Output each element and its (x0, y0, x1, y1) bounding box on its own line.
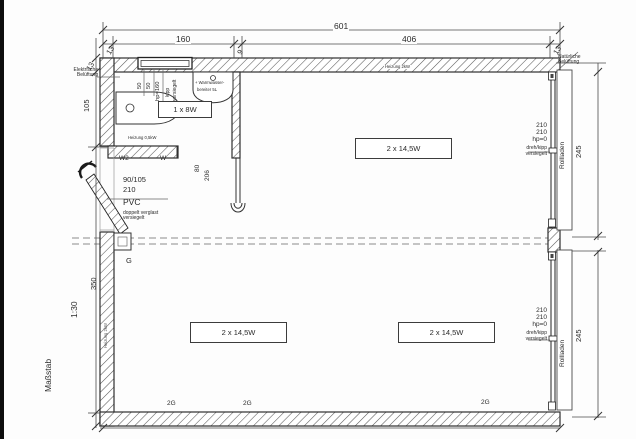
electric-vent-line2: Belüftung (58, 73, 98, 78)
section-dashed-lines (72, 238, 548, 244)
lower-window-labels: 210 210 hp=0 dreh/kipp versiegelt (504, 308, 547, 342)
dim-total-width: 601 (333, 22, 349, 31)
dim-bath-height: 105 (83, 99, 91, 112)
main-light-label: 2 x 14,5W (387, 144, 421, 153)
upper-window-sealed: versiegelt (504, 152, 547, 157)
scale-word: Maßstab (44, 359, 53, 392)
natural-vent-line2: Belüftung (558, 60, 581, 65)
scan-edge (0, 0, 4, 439)
electric-vent-label: Elektrische Belüftung (58, 68, 98, 79)
heater-text-1: + Warmwasser- (195, 81, 224, 85)
door-sealed: versiegelt (123, 216, 158, 221)
circuit-tag-1: 2G (167, 401, 176, 408)
upper-window-hp: hp=0 (504, 137, 547, 144)
floor-plan-page: 601 160 406 13 9 13 13 105 350 Maßstab 1… (0, 0, 636, 439)
lower-window-hp: hp=0 (504, 322, 547, 329)
circuit-tag-2: 2G (243, 401, 252, 408)
circuit-tag-3: 2G (481, 400, 490, 407)
gas-meter-box (114, 233, 131, 250)
door-handle-icon (231, 203, 245, 212)
main-light-fixture-right: 2 x 14,5W (398, 322, 495, 343)
bath-window-seg2: 50 (146, 83, 152, 89)
bath-window-hp: hp=160 (155, 81, 161, 101)
right-window-lower (549, 252, 558, 410)
bath-window-type: kipp (166, 88, 171, 97)
exterior-door-labels: 90/105 210 PVC doppelt verglast versiege… (123, 176, 158, 221)
gas-tag: G (126, 257, 132, 265)
dim-main-width: 406 (401, 35, 417, 44)
bath-door-height: 206 (205, 170, 212, 181)
scale-value: 1:30 (70, 301, 79, 318)
main-light-label: 2 x 14,5W (430, 328, 464, 337)
wc-symbol (126, 104, 134, 112)
rollladen-upper-label: Rollladen (560, 142, 567, 169)
heater-text-2: bereiter 5L (197, 88, 217, 92)
lower-window-sealed: versiegelt (504, 337, 547, 342)
main-light-fixture-left: 2 x 14,5W (190, 322, 287, 343)
heating-wall-label: Heizung 2kW (104, 323, 108, 348)
dimension-lines (88, 22, 606, 428)
dim-window-upper: 245 (575, 145, 583, 158)
upper-window-labels: 210 210 hp=0 dreh/kipp versiegelt (504, 123, 547, 157)
natural-vent-label: Natürliche Belüftung (558, 55, 581, 66)
rollladen-lower-label: Rollladen (560, 340, 567, 367)
bath-light-label: 1 x 8W (173, 105, 196, 114)
wall-tag-w: W (160, 156, 166, 163)
bath-window (138, 58, 192, 70)
heating-top-label: Heizung 2kW (384, 65, 411, 69)
dim-window-lower: 245 (575, 329, 583, 342)
exterior-door-leaf (78, 161, 128, 234)
bath-window-seg1: 50 (137, 83, 143, 89)
wall-tag-w2: W2 (119, 156, 129, 163)
right-window-upper (549, 72, 558, 228)
bath-window-sealed: versiegelt (173, 80, 178, 101)
dim-bath-width: 160 (175, 35, 191, 44)
door-material: PVC (123, 198, 158, 207)
bath-heating-label: Heizung 0,5kW (127, 136, 157, 140)
door-size: 90/105 (123, 176, 158, 184)
bath-light-fixture: 1 x 8W (158, 101, 212, 118)
dim-main-height: 350 (90, 277, 98, 290)
door-height: 210 (123, 186, 158, 194)
main-light-label: 2 x 14,5W (222, 328, 256, 337)
main-light-fixture-top: 2 x 14,5W (355, 138, 452, 159)
bath-door-width: 80 (195, 165, 202, 172)
